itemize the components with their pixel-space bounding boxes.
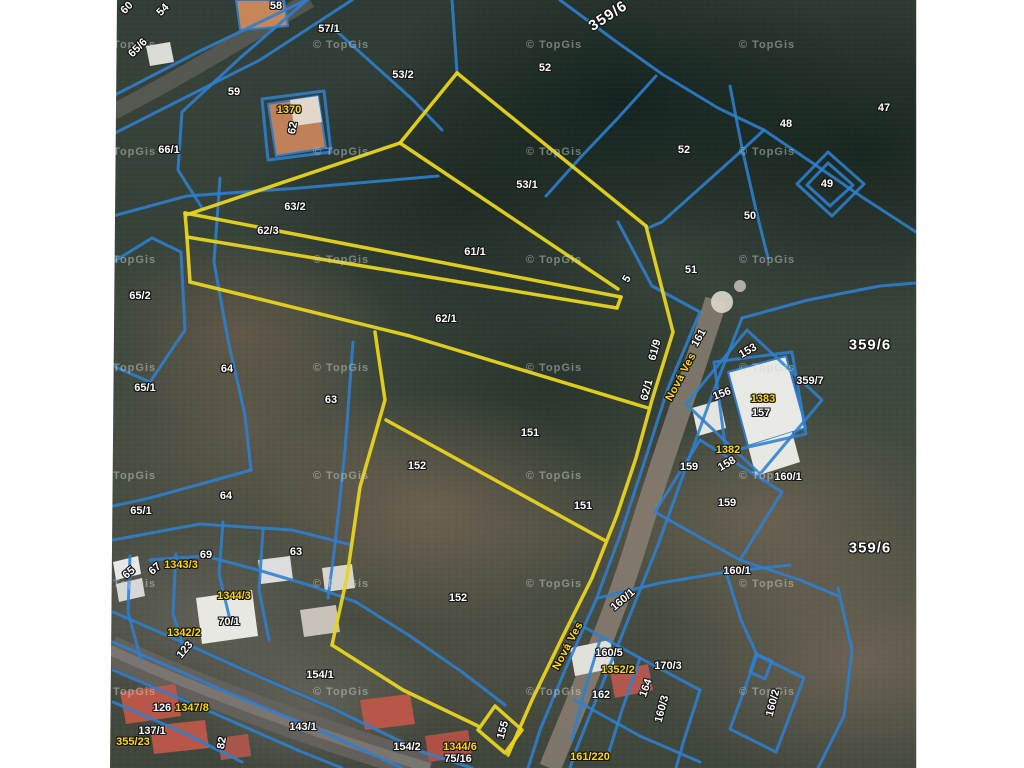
scanned-cadastral-map-page: © TopGis© TopGis© TopGis© TopGis© TopGis… (0, 0, 1024, 768)
map-viewport[interactable]: © TopGis© TopGis© TopGis© TopGis© TopGis… (0, 0, 1024, 768)
page-margin-left (0, 0, 118, 768)
page-margin-right (916, 0, 1024, 768)
aerial-texture (0, 0, 1024, 768)
